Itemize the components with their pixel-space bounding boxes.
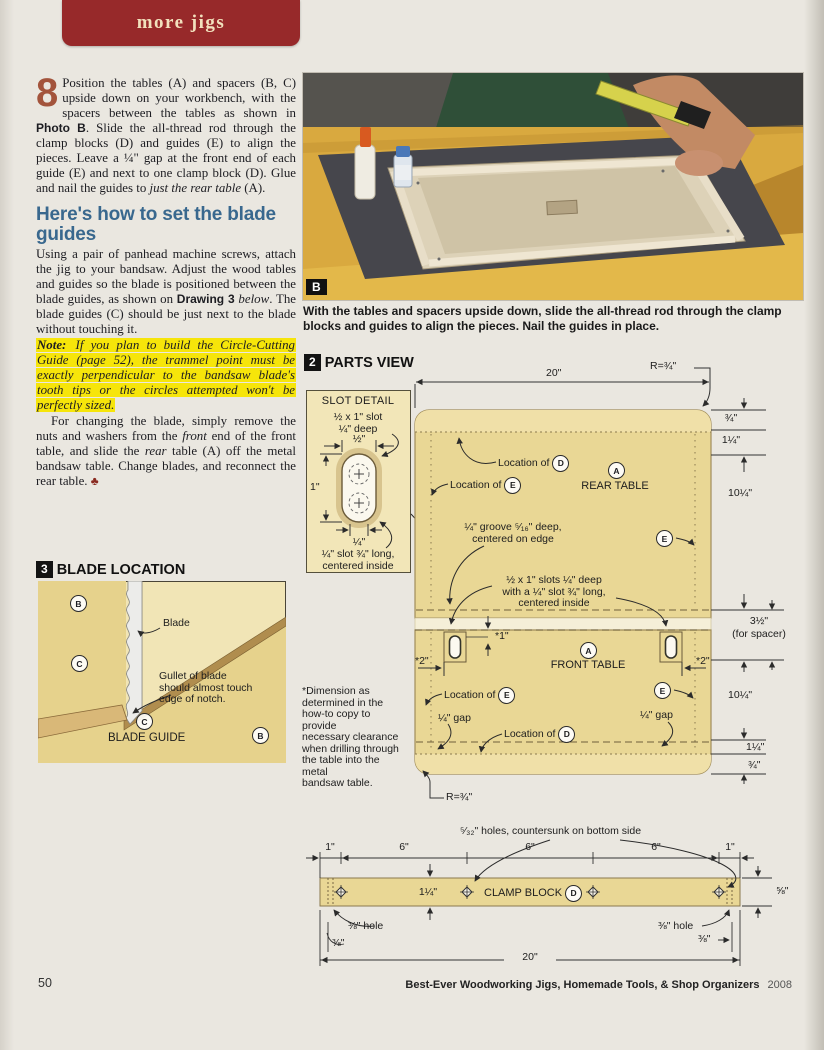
top-width-dim: 20" (546, 368, 561, 380)
dim-five-eighth: ⅝" (776, 886, 788, 898)
section-tab-label: more jigs (137, 12, 226, 34)
dim-total-width: 20" (510, 952, 550, 964)
top-radius-dim: R=¾" (650, 361, 676, 373)
photo-b-image: B (303, 73, 803, 300)
circle-letter-e: E (504, 477, 521, 494)
dim-block-width: 1¼" (408, 887, 448, 899)
circle-letter-a-front: A (580, 642, 597, 659)
circle-letter-c: C (71, 655, 88, 672)
article-column: 8Position the tables (A) and spacers (B,… (36, 76, 296, 490)
groove-note: ¼" groove ⁵⁄₁₆" deep, centered on edge (458, 522, 568, 545)
dim-6in-c: 6" (642, 842, 670, 854)
slot-half-dim: ½" (334, 434, 384, 446)
dim-38-right: ⅜" (698, 934, 710, 946)
drawing3-header: 3BLADE LOCATION (36, 561, 185, 579)
dim-38-left: ⅜" (332, 938, 344, 950)
slot-detail-note: ½ x 1" slot ¼" deep (308, 412, 408, 435)
circle-letter-c2: C (136, 713, 153, 730)
clamp-block-label: CLAMP BLOCKD (484, 885, 582, 902)
gullet-note: Gullet of blade should almost touch edge… (159, 671, 252, 706)
circle-letter-e-front-right: E (654, 682, 671, 699)
slot-one-dim: 1" (310, 482, 320, 494)
footer-credit: Best-Ever Woodworking Jigs, Homemade Too… (405, 979, 792, 991)
dim-one-quarter-top: 1¼" (714, 435, 748, 447)
slot-bottom-note: ¼" slot ¾" long, centered inside (304, 549, 412, 572)
magazine-page: more jigs 8Position the tables (A) and s… (0, 0, 824, 1050)
star2-dim-left: *2" (415, 656, 429, 668)
dim-spacer-note: (for spacer) (726, 629, 792, 641)
slot-quarter-dim: ¼" (334, 537, 384, 549)
dim-1in-right: 1" (716, 842, 744, 854)
rear-table-label: REAR TABLE (570, 481, 660, 493)
parts-view-header: 2PARTS VIEW (304, 354, 414, 372)
blade-change-paragraph: For changing the blade, simply remove th… (36, 414, 296, 489)
photo-b-caption: With the tables and spacers upside down,… (303, 304, 803, 334)
drawing3-title: BLADE LOCATION (57, 562, 186, 578)
dim-one-quarter-bottom: 1¼" (746, 742, 764, 754)
circle-letter-d2: D (558, 726, 575, 743)
end-of-article-icon: ♣ (91, 474, 99, 488)
highlighted-note: Note: If you plan to build the Circle-Cu… (36, 338, 296, 413)
drawing-3-ref: Drawing 3 (177, 292, 235, 306)
blade-label: Blade (163, 618, 190, 630)
dim-6in-a: 6" (390, 842, 418, 854)
photo-b-illustration (303, 73, 803, 300)
drawing3-number: 3 (36, 561, 53, 578)
dim-ten-quarter-rear: 10¼" (728, 488, 752, 500)
star1-dim: *1" (495, 631, 509, 643)
blade-guides-paragraph: Using a pair of panhead machine screws, … (36, 247, 296, 337)
note-label: Note: (36, 338, 67, 352)
hole-38-left: ⅜" hole (348, 921, 383, 933)
drawing3-diagram: B C Blade Gullet of blade should almost … (38, 581, 286, 763)
circle-letter-e-rear-right: E (656, 530, 673, 547)
circle-letter-d: D (552, 455, 569, 472)
star2-dim-right: *2" (696, 656, 710, 668)
step-8-paragraph: 8Position the tables (A) and spacers (B,… (36, 76, 296, 196)
dim-three-quarter-top: ¾" (716, 413, 746, 425)
slots-note: ½ x 1" slots ¼" deep with a ¼" slot ¾" l… (492, 575, 616, 610)
slot-detail-title: SLOT DETAIL (308, 396, 408, 408)
photo-b-ref: Photo B (36, 121, 86, 135)
page-number: 50 (38, 976, 52, 990)
footer-title: Best-Ever Woodworking Jigs, Homemade Too… (405, 979, 759, 991)
footer-year: 2008 (768, 979, 792, 991)
dim-1in-left: 1" (316, 842, 344, 854)
asterisk-note: *Dimension as determined in the how-to c… (302, 686, 406, 790)
section-tab: more jigs (62, 0, 300, 46)
dim-three-quarter-bottom: ¾" (748, 760, 760, 772)
location-of-d-front: Location ofD (504, 726, 575, 743)
circle-letter-b2: B (252, 727, 269, 744)
clamp-block-diagram: ⁵⁄₃₂" holes, countersunk on bottom side … (298, 826, 810, 976)
circle-letter-e2: E (498, 687, 515, 704)
gap-dim-right: ¼" gap (640, 710, 673, 722)
parts-view-diagram: 2PARTS VIEW R=¾" 20" SLOT DETAIL ½ x 1" … (298, 354, 810, 824)
front-table-label: FRONT TABLE (540, 660, 636, 672)
location-of-e-front: Location ofE (444, 687, 515, 704)
parts-view-number: 2 (304, 354, 321, 371)
circle-letter-b: B (70, 595, 87, 612)
circle-letter-d-clamp: D (565, 885, 582, 902)
location-of-d-rear: Location ofD (498, 455, 569, 472)
countersunk-holes-note: ⁵⁄₃₂" holes, countersunk on bottom side (460, 826, 641, 838)
dim-ten-quarter-front: 10¼" (728, 690, 752, 702)
hole-38-right: ⅜" hole (658, 921, 693, 933)
parts-view-title: PARTS VIEW (325, 355, 414, 371)
circle-letter-a-rear: A (608, 462, 625, 479)
dim-spacer: 3½" (742, 616, 776, 628)
photo-b-label: B (306, 279, 327, 295)
section-heading: Here's how to set the blade guides (36, 205, 296, 245)
gap-dim-left: ¼" gap (438, 713, 471, 725)
dim-6in-b: 6" (516, 842, 544, 854)
step-number: 8 (36, 78, 58, 108)
location-of-e-rear: Location ofE (450, 477, 521, 494)
bottom-radius-dim: R=¾" (446, 792, 472, 804)
blade-guide-label: BLADE GUIDE (108, 733, 185, 745)
